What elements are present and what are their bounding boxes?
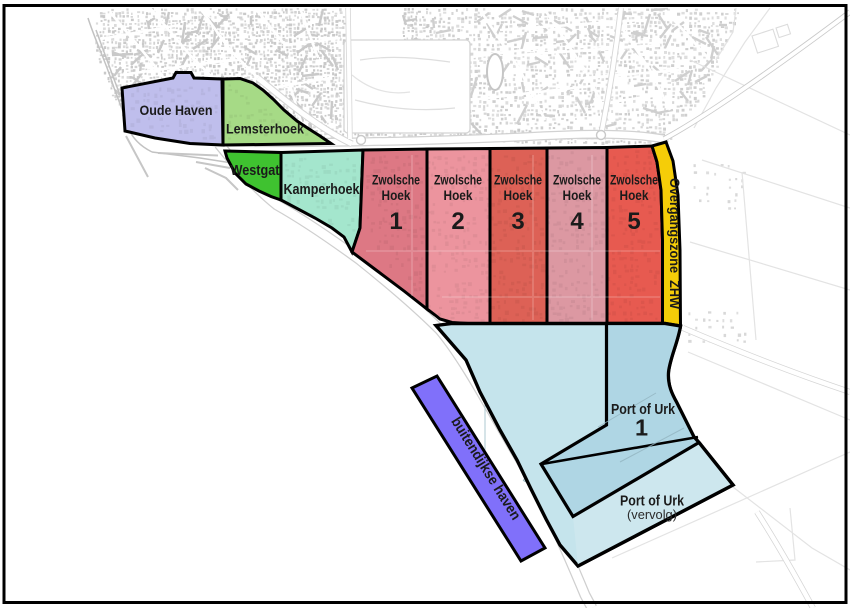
svg-text:Zwolsche: Zwolsche [610, 173, 658, 188]
svg-text:Zwolsche: Zwolsche [494, 173, 542, 188]
svg-text:Zwolsche: Zwolsche [434, 173, 482, 188]
svg-text:5: 5 [627, 208, 640, 235]
svg-text:2: 2 [451, 208, 464, 235]
svg-text:Hoek: Hoek [504, 188, 533, 203]
svg-text:Overgangszone ZHW: Overgangszone ZHW [667, 178, 682, 309]
svg-text:Westgat: Westgat [231, 163, 280, 179]
svg-text:Hoek: Hoek [382, 188, 411, 203]
svg-text:4: 4 [570, 208, 584, 235]
svg-text:(vervolg): (vervolg) [627, 507, 677, 522]
svg-text:Zwolsche: Zwolsche [372, 173, 420, 188]
svg-text:Hoek: Hoek [620, 188, 649, 203]
svg-text:3: 3 [511, 208, 524, 235]
svg-text:Lemsterhoek: Lemsterhoek [226, 122, 304, 137]
svg-text:Hoek: Hoek [563, 188, 592, 203]
svg-text:Hoek: Hoek [444, 188, 473, 203]
svg-text:Oude Haven: Oude Haven [140, 102, 213, 118]
svg-text:1: 1 [389, 208, 402, 235]
svg-text:Kamperhoek: Kamperhoek [284, 181, 361, 198]
svg-text:1: 1 [635, 415, 648, 441]
svg-text:Zwolsche: Zwolsche [553, 173, 601, 188]
